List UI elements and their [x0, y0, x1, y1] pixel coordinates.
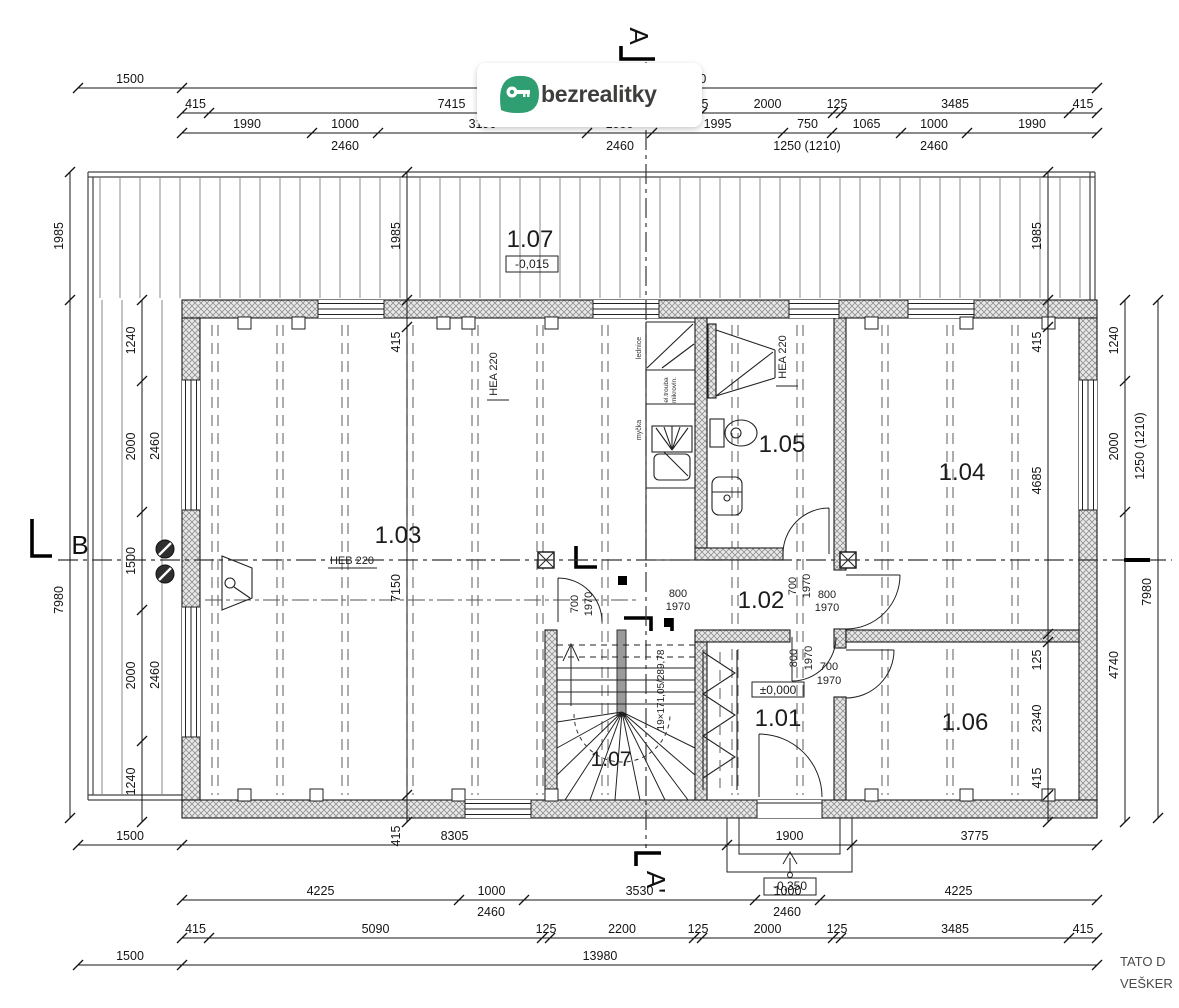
dim-value: 2000 — [1107, 433, 1121, 461]
dim-value: 4225 — [945, 884, 973, 898]
dim-sub-value: 2460 — [148, 661, 162, 689]
room-label-deck: 1.07 — [507, 226, 554, 253]
bezrealitky-logo: bezrealitky — [477, 63, 702, 127]
footer-note-2: VEŠKER — [1120, 976, 1173, 991]
dim-sub-value: 2460 — [920, 139, 948, 153]
door-dim: 1970 — [817, 675, 841, 687]
dim-value: 3485 — [941, 922, 969, 936]
dim-value: 125 — [827, 97, 848, 111]
dim-value: 415 — [185, 922, 206, 936]
beam-label-heb: HEB 220 — [330, 555, 374, 567]
window-top-4 — [908, 300, 974, 318]
dim-value: 4740 — [1107, 651, 1121, 679]
floorplan-page: 1500139804157415125200012534854151990100… — [0, 0, 1179, 1008]
dim-sub-value: 2460 — [477, 905, 505, 919]
door-dim: 700 — [787, 577, 799, 595]
dim-value: 1985 — [1030, 222, 1044, 250]
dim-value: 1240 — [124, 768, 138, 796]
door-dim: 1970 — [583, 592, 595, 616]
window-top-1 — [318, 300, 384, 318]
dim-value: 2340 — [1030, 705, 1044, 733]
beam-label-hea-left: HEA 220 — [488, 352, 500, 395]
dim-value: 8305 — [441, 829, 469, 843]
label-oven-2: mikrovln. — [671, 377, 678, 403]
dim-value: 125 — [1030, 650, 1044, 671]
dim-value: 2200 — [608, 922, 636, 936]
dim-value: 415 — [389, 826, 403, 847]
window-bottom-1 — [465, 800, 531, 818]
dim-value: 415 — [185, 97, 206, 111]
dim-value: 125 — [536, 922, 557, 936]
dim-value: 1000 — [331, 117, 359, 131]
dim-value: 1240 — [1107, 327, 1121, 355]
footer-note-1: TATO D — [1120, 954, 1166, 969]
room-label-hall: 1.02 — [738, 587, 785, 614]
dim-value: 13980 — [583, 949, 618, 963]
dim-value: 1065 — [853, 117, 881, 131]
label-fridge: lednice — [636, 337, 643, 359]
dim-value: 1985 — [389, 222, 403, 250]
room-label-stairs: 1.07 — [591, 748, 632, 771]
dim-value: 415 — [1073, 922, 1094, 936]
label-oven-1: el.trouba — [663, 377, 670, 403]
room-label-104: 1.04 — [939, 459, 986, 486]
window-right-1 — [1079, 380, 1097, 510]
dim-sub-value: 2460 — [606, 139, 634, 153]
dim-value: 1500 — [124, 547, 138, 575]
dim-value: 2000 — [124, 662, 138, 690]
section-letter-a: A — [624, 27, 654, 45]
room-label-living: 1.03 — [375, 522, 422, 549]
dim-value: 4685 — [1030, 467, 1044, 495]
dim-value: 125 — [688, 922, 709, 936]
floorplan-svg: 1500139804157415125200012534854151990100… — [0, 0, 1179, 1008]
dim-sub-value: 2460 — [773, 905, 801, 919]
level-porch: -0,350 — [773, 879, 807, 893]
dim-value: 1240 — [124, 327, 138, 355]
window-top-2 — [593, 300, 659, 318]
door-dim: 800 — [788, 649, 800, 667]
dim-value: 415 — [1030, 332, 1044, 353]
dim-value: 415 — [389, 332, 403, 353]
door-dim: 1970 — [801, 574, 813, 598]
door-dim: 1970 — [815, 602, 839, 614]
dim-value: 1990 — [1018, 117, 1046, 131]
canvas-bg — [0, 0, 1179, 1008]
dim-value: 1900 — [776, 829, 804, 843]
room-label-bath: 1.05 — [759, 431, 806, 458]
logo-pin-icon — [500, 76, 539, 113]
dim-value: 7980 — [52, 586, 66, 614]
door-dim: 700 — [569, 595, 581, 613]
dim-value: 415 — [1030, 768, 1044, 789]
dim-value: 1500 — [116, 72, 144, 86]
dim-value: 3485 — [941, 97, 969, 111]
door-dim: 1970 — [803, 646, 815, 670]
level-deck: -0,015 — [515, 257, 549, 271]
dim-value: 2000 — [754, 922, 782, 936]
section-letter-a-prime: A' — [641, 871, 671, 893]
dim-value: 7150 — [389, 574, 403, 602]
dim-value: 7980 — [1140, 578, 1154, 606]
dim-value: 125 — [827, 922, 848, 936]
dim-value: 7415 — [438, 97, 466, 111]
logo-text: bezrealitky — [541, 81, 657, 107]
door-dim: 800 — [669, 588, 687, 600]
dim-value: 1995 — [704, 117, 732, 131]
dim-sub-value: 1250 (1210) — [773, 139, 840, 153]
window-top-3 — [789, 300, 839, 318]
window-left-1 — [182, 380, 200, 510]
room-label-106: 1.06 — [942, 709, 989, 736]
entry-door-opening — [757, 800, 822, 818]
door-dim: 800 — [818, 589, 836, 601]
section-letter-b: B — [71, 530, 88, 560]
dim-value: 1990 — [233, 117, 261, 131]
dim-value: 1000 — [478, 884, 506, 898]
dim-value: 750 — [797, 117, 818, 131]
dim-value: 1500 — [116, 829, 144, 843]
room-label-entry: 1.01 — [755, 705, 802, 732]
dim-value: 5090 — [362, 922, 390, 936]
dim-value: 1985 — [52, 222, 66, 250]
label-dishwasher: myčka — [636, 420, 643, 440]
dim-value: 3775 — [961, 829, 989, 843]
stair-note: 19×171,05/289,78 — [656, 649, 667, 730]
dim-sub-value: 2460 — [331, 139, 359, 153]
door-dim: 700 — [820, 661, 838, 673]
dim-value: 1000 — [920, 117, 948, 131]
beam-label-hea-right: HEA 220 — [777, 335, 789, 378]
dim-value: 4225 — [307, 884, 335, 898]
dim-value: 2000 — [754, 97, 782, 111]
dim-sub-value: 2460 — [148, 432, 162, 460]
level-entry: ±0,000 — [760, 683, 797, 697]
dim-sub-value: 1250 (1210) — [1133, 412, 1147, 479]
window-left-2 — [182, 607, 200, 737]
dim-value: 2000 — [124, 433, 138, 461]
dim-value: 1500 — [116, 949, 144, 963]
dim-value: 415 — [1073, 97, 1094, 111]
door-dim: 1970 — [666, 601, 690, 613]
